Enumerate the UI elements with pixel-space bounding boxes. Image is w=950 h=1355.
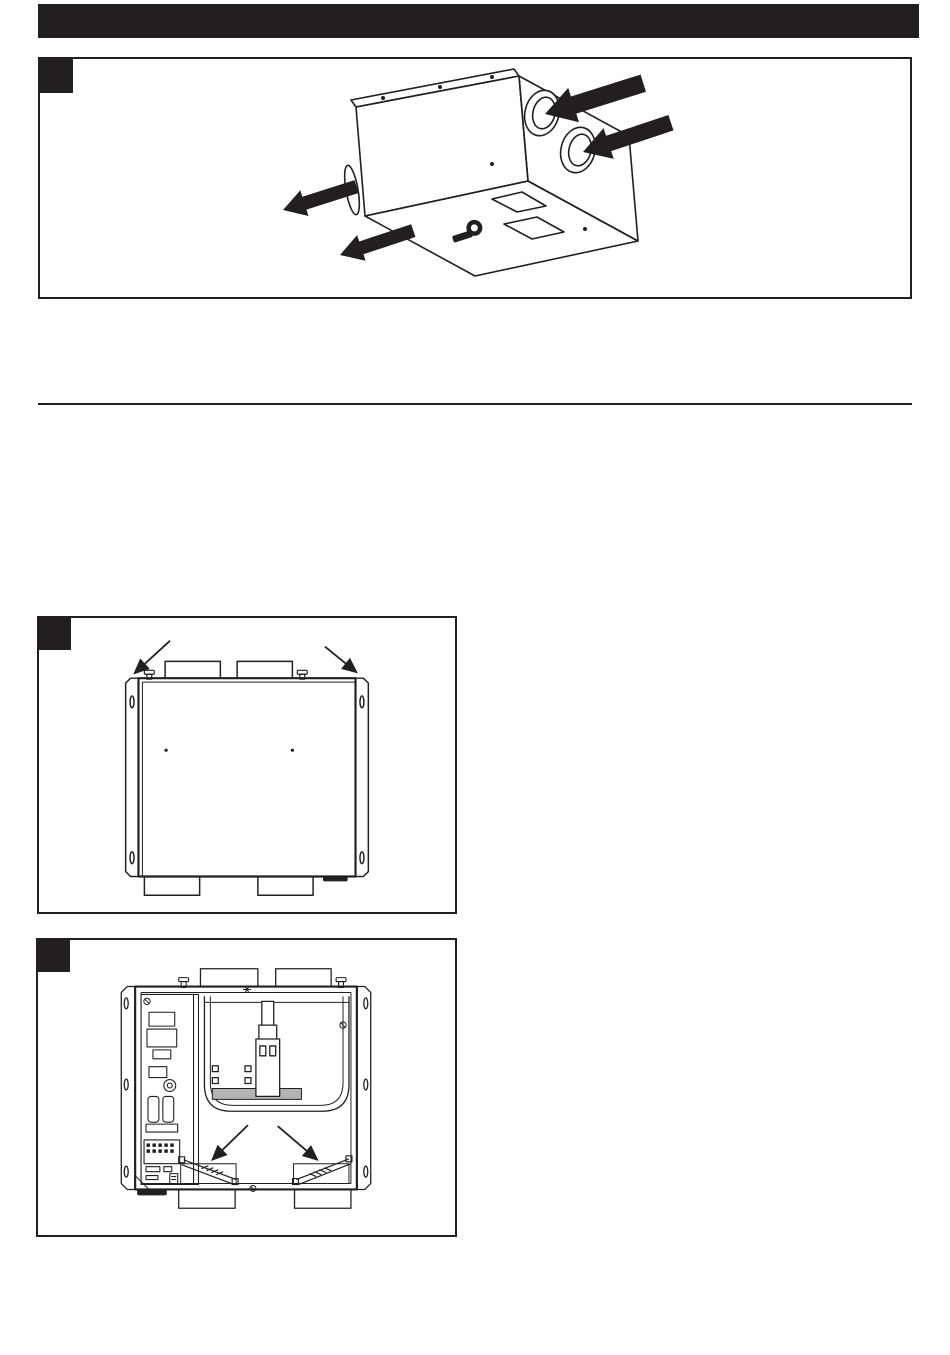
top-duct-collar [237,661,292,678]
pointer-arrow-icon [212,1125,248,1160]
bottom-duct-collar [258,876,313,895]
airflow-out-arrow-icon [336,218,418,268]
cord-grommet [323,876,348,881]
left-filter [179,1157,238,1185]
top-duct-collar [165,661,220,678]
section-divider [38,403,912,405]
brand-logo-icon [449,218,484,243]
unit-front-view [126,641,369,896]
cord-grommet [137,1189,167,1195]
right-filter [293,1156,352,1185]
figure-1-drawing [40,59,910,297]
figure-3-drawing [38,940,455,1235]
cabinet [138,678,355,876]
top-duct-collar [276,969,331,987]
bottom-duct-collar [295,1189,351,1208]
figure-2-frame [37,616,457,914]
door-vent-slot [492,192,546,212]
figure-3-frame [36,938,457,1237]
section-header-bar [38,4,919,38]
pointer-arrow-icon [325,647,357,673]
airflow-arrows [279,66,676,268]
door-vent-slot [504,217,564,239]
figure-1-frame [38,57,912,299]
manual-page [0,0,950,1355]
unit-open-view [121,969,370,1209]
central-chamber [204,996,349,1111]
bottom-duct-collar [144,876,199,895]
figure-2-drawing [39,618,455,912]
top-duct-collar [200,969,257,987]
pointer-arrow-icon [278,1126,318,1160]
electrical-compartment [141,994,198,1184]
damper-rod [262,1001,274,1027]
bottom-duct-collar [179,1189,235,1208]
mounting-flange [351,69,519,107]
